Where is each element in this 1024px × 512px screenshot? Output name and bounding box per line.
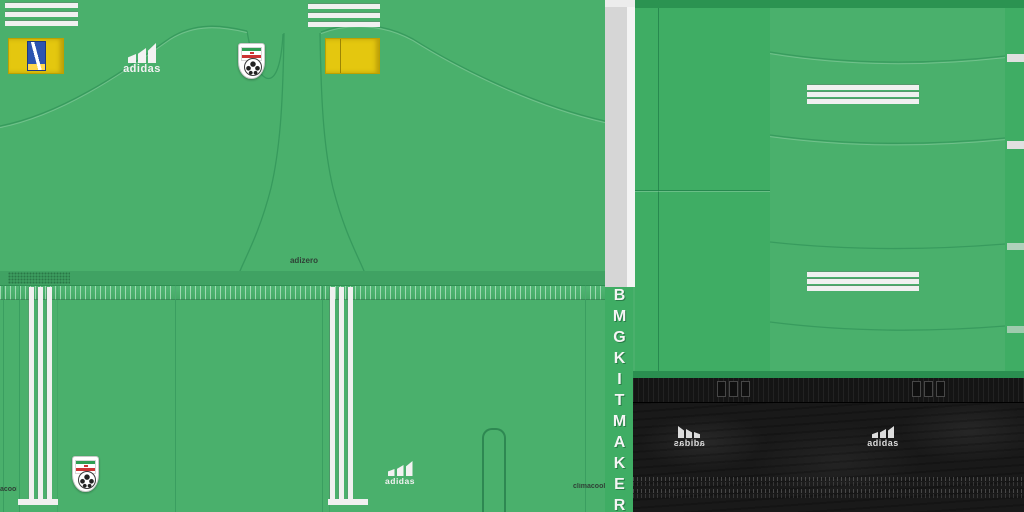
sleeve-panel-dotted (770, 8, 1005, 371)
iran-federation-badge (238, 43, 265, 79)
stripe-end-bar (328, 499, 368, 505)
adidas-wordmark: adidas (673, 438, 705, 448)
socks-rib-strip (633, 378, 1024, 403)
sleeve-seam-curves (770, 8, 1005, 371)
divider-strip-cap (605, 0, 635, 7)
socks-panel: adidas adidas (633, 378, 1024, 512)
three-stripes-icon (5, 3, 78, 26)
sleeve-seam (635, 190, 770, 191)
sleeve-edge-column (1005, 8, 1024, 371)
adidas-wordmark: adidas (385, 476, 415, 486)
adidas-logo: adidas (112, 43, 172, 75)
adidas-wordmark: adidas (123, 63, 161, 75)
stitch-row (633, 477, 1024, 481)
kit-texture-sheet: adidas adizero adidas acool climacool BM… (0, 0, 1024, 512)
stripe-end-bar (18, 499, 58, 505)
shorts-seam (19, 285, 20, 512)
climacool-label: climacool (573, 483, 605, 490)
stitch-row (633, 489, 1024, 493)
edge-highlight (1007, 243, 1024, 250)
edge-highlight (1007, 141, 1024, 149)
socks-top-band (633, 371, 1024, 378)
shorts-seam (57, 285, 58, 512)
world-cup-emblem-icon (27, 41, 46, 71)
adidas-logo: adidas (376, 461, 424, 486)
patch-seam (340, 39, 341, 73)
iran-federation-badge (72, 456, 99, 492)
three-stripes-icon (807, 85, 919, 104)
three-stripes-icon (308, 4, 380, 27)
sleeve-top-band (635, 0, 1024, 8)
adidas-logo-mirrored: adidas (663, 426, 715, 448)
adidas-bars-icon (678, 426, 700, 438)
divider-white-line (627, 0, 635, 287)
shorts-seam (585, 285, 586, 512)
edge-highlight (1007, 326, 1024, 333)
sock-tabs (717, 381, 750, 397)
adidas-bars-icon (388, 461, 413, 476)
adidas-logo: adidas (857, 426, 909, 448)
shorts-gusset-arch (482, 428, 506, 512)
three-stripes-icon (29, 287, 52, 499)
shorts-seam (322, 285, 323, 512)
adizero-label: adizero (282, 256, 326, 265)
shirt-hem-band (0, 271, 605, 286)
badge-shield (72, 456, 99, 492)
adidas-bars-icon (872, 426, 894, 438)
climacool-label-partial: acool (0, 486, 17, 493)
adidas-wordmark: adidas (867, 438, 899, 448)
shorts-seam (3, 285, 4, 512)
badge-shield (238, 43, 265, 79)
hem-texture-patch (8, 272, 70, 284)
stitch-row (633, 494, 1024, 498)
stitch-row (633, 482, 1024, 486)
soccer-ball-icon (244, 58, 262, 76)
shorts-seam (175, 285, 176, 512)
maker-vertical-text: BMGKITMAKER (605, 287, 633, 512)
sleeve-panel-solid (635, 8, 770, 371)
collar-patch (325, 38, 380, 74)
shorts-waistband-stitching (0, 285, 605, 300)
edge-highlight (1007, 54, 1024, 62)
adidas-bars-icon (128, 43, 156, 63)
three-stripes-icon (807, 272, 919, 291)
collar-patch-with-emblem (8, 38, 64, 74)
soccer-ball-icon (78, 471, 96, 489)
template-divider-strip (605, 0, 629, 287)
sock-tabs (912, 381, 945, 397)
three-stripes-icon (330, 287, 353, 499)
maker-tag-column: BMGKITMAKER (605, 287, 633, 512)
